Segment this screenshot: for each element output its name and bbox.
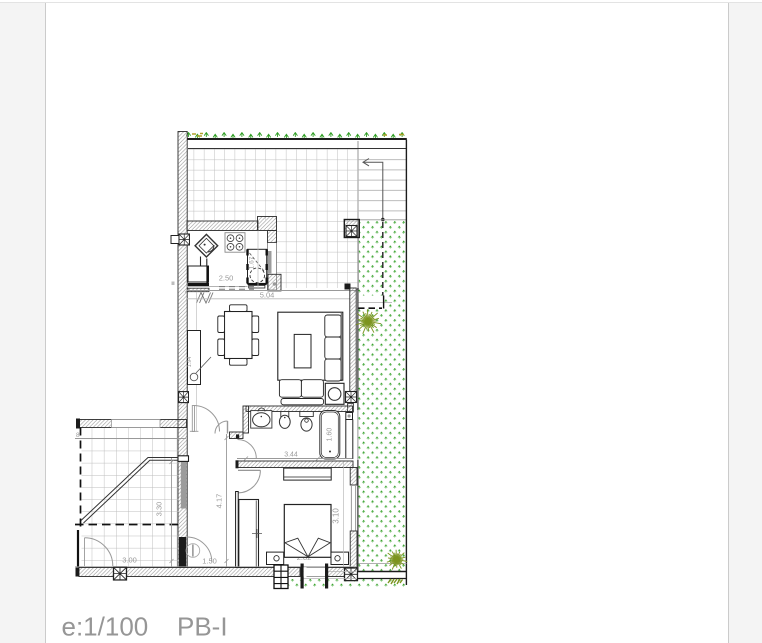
svg-text:3.10: 3.10 — [332, 508, 341, 524]
svg-text:1.60: 1.60 — [327, 428, 334, 442]
svg-text:4.17: 4.17 — [215, 494, 224, 509]
svg-text:e:1/100: e:1/100 — [62, 612, 149, 642]
svg-text:PB-I: PB-I — [177, 612, 228, 642]
svg-text:2.50: 2.50 — [219, 274, 234, 283]
svg-text:1.67: 1.67 — [249, 256, 256, 269]
svg-text:3.44: 3.44 — [284, 452, 298, 459]
svg-text:3.30: 3.30 — [155, 502, 164, 517]
svg-text:1.94: 1.94 — [187, 357, 193, 368]
svg-text:8: 8 — [76, 432, 80, 439]
svg-text:3.00: 3.00 — [122, 556, 137, 565]
svg-text:1.50: 1.50 — [202, 557, 217, 566]
svg-text:5.04: 5.04 — [260, 291, 275, 300]
